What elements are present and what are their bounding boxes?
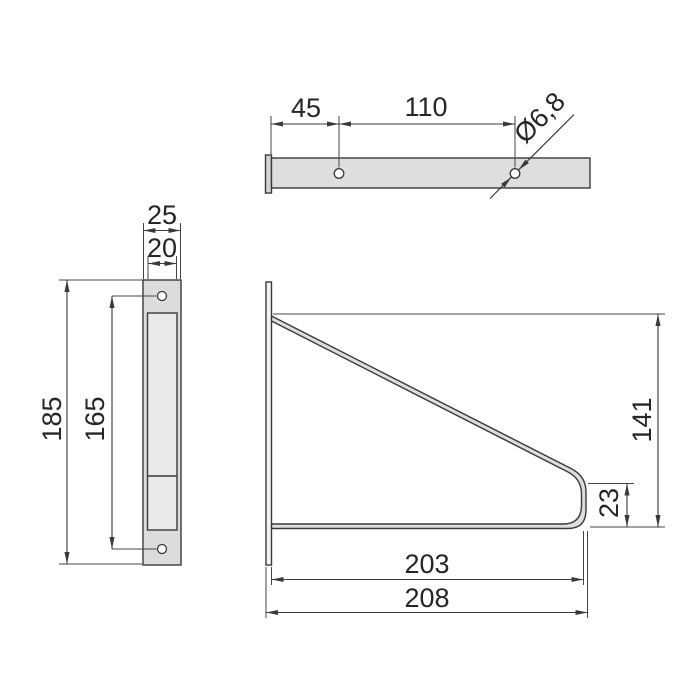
- dim-plate-inner-width: 20: [147, 233, 177, 279]
- side-view-slot: [148, 313, 178, 530]
- dim-plate-hole-pitch-label: 165: [80, 396, 110, 441]
- dim-top-hole-offset-label: 45: [291, 93, 321, 123]
- dim-plate-height-label: 185: [37, 396, 67, 441]
- dim-arm-depth-outer-label: 208: [404, 583, 449, 613]
- drawing-svg: 45 110 Ø6,8 25 20: [0, 0, 700, 700]
- side-view: 25 20 185 165: [37, 200, 181, 565]
- front-view: 141 23 203 208: [266, 282, 665, 618]
- side-view-hole-top: [158, 292, 167, 301]
- top-view-hole-right: [510, 169, 520, 179]
- technical-drawing: 45 110 Ø6,8 25 20: [0, 0, 700, 700]
- dim-arm-depth-inner: 203: [272, 531, 584, 585]
- front-view-bracket-strip: [272, 316, 587, 529]
- front-view-wall-plate: [266, 282, 272, 565]
- dim-plate-outer-width-label: 25: [147, 200, 177, 230]
- dim-top-hole-spacing: 110: [339, 92, 515, 168]
- dim-plate-inner-width-label: 20: [147, 233, 177, 263]
- dim-top-hole-offset: 45: [271, 93, 339, 168]
- dim-bracket-height-label: 141: [627, 397, 657, 442]
- top-view-end-cap: [266, 155, 272, 193]
- top-view-hole-left: [334, 169, 344, 179]
- dim-tip-height: 23: [588, 484, 634, 528]
- side-view-hole-bottom: [158, 545, 167, 554]
- dim-hole-diameter-label: Ø6,8: [508, 86, 571, 149]
- dim-arm-depth-inner-label: 203: [404, 549, 449, 579]
- dim-tip-height-label: 23: [594, 488, 624, 518]
- top-view: 45 110 Ø6,8: [266, 86, 591, 198]
- top-view-arm-body: [272, 158, 591, 188]
- dim-top-hole-spacing-label: 110: [404, 92, 447, 122]
